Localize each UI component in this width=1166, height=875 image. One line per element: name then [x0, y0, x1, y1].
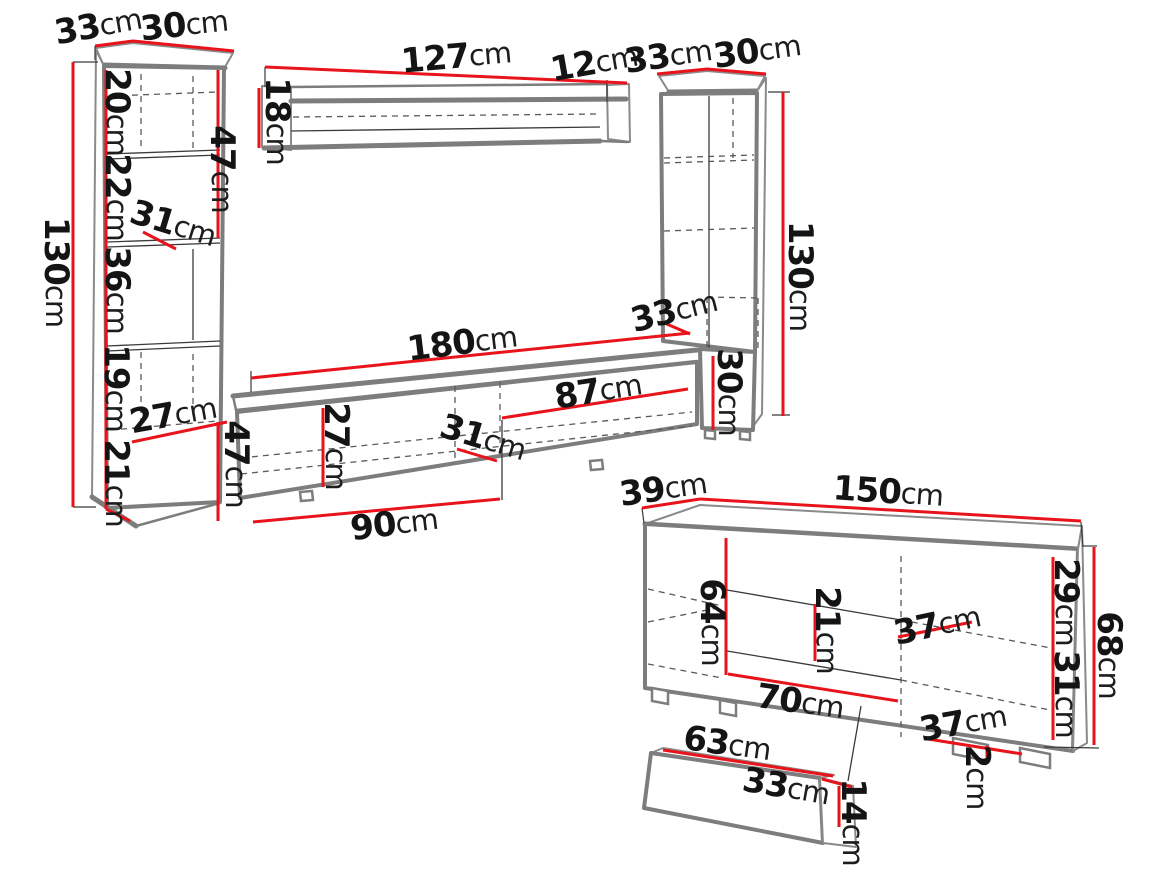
- dim-label-sideboard-3: 21cm: [807, 586, 847, 674]
- dim-label-right-cabinet-1: 30cm: [711, 25, 803, 77]
- dim-label-sideboard-6: 31cm: [1046, 650, 1086, 738]
- dim-label-wall-shelf-0: 127cm: [399, 32, 512, 81]
- dim-label-sideboard-10: 2cm: [957, 745, 997, 810]
- dim-label-left-cabinet-1: 30cm: [138, 1, 229, 50]
- wall-shelf-right-panel: [607, 84, 630, 142]
- dim-label-left-cabinet-9: 21cm: [96, 439, 136, 527]
- dim-label-drawer-2: 14cm: [833, 778, 873, 866]
- dim-label-tv-stand-5: 90cm: [348, 499, 440, 549]
- dim-label-tv-stand-0: 180cm: [405, 316, 519, 369]
- dim-label-left-cabinet-6: 36cm: [97, 246, 137, 334]
- dim-label-sideboard-5: 29cm: [1046, 558, 1086, 646]
- dim-label-right-cabinet-4: 30cm: [709, 348, 749, 436]
- furniture-dimension-diagram: 33cm30cm130cm20cm22cm31cm36cm19cm27cm21c…: [0, 0, 1166, 875]
- dim-label-sideboard-2: 64cm: [692, 578, 732, 666]
- dim-label-tv-stand-4: 47cm: [216, 420, 256, 508]
- dim-label-wall-shelf-2: 18cm: [257, 77, 297, 165]
- dim-label-sideboard-1: 150cm: [832, 468, 945, 516]
- diagram-svg: 33cm30cm130cm20cm22cm31cm36cm19cm27cm21c…: [0, 0, 1166, 875]
- dim-label-sideboard-7: 68cm: [1089, 611, 1129, 699]
- dim-label-right-cabinet-2: 130cm: [780, 221, 820, 331]
- dim-label-tv-stand-2: 27cm: [316, 402, 356, 490]
- dim-label-left-cabinet-10: 47cm: [202, 125, 242, 213]
- dim-label-left-cabinet-3: 20cm: [97, 68, 137, 156]
- dim-label-left-cabinet-2: 130cm: [36, 217, 76, 327]
